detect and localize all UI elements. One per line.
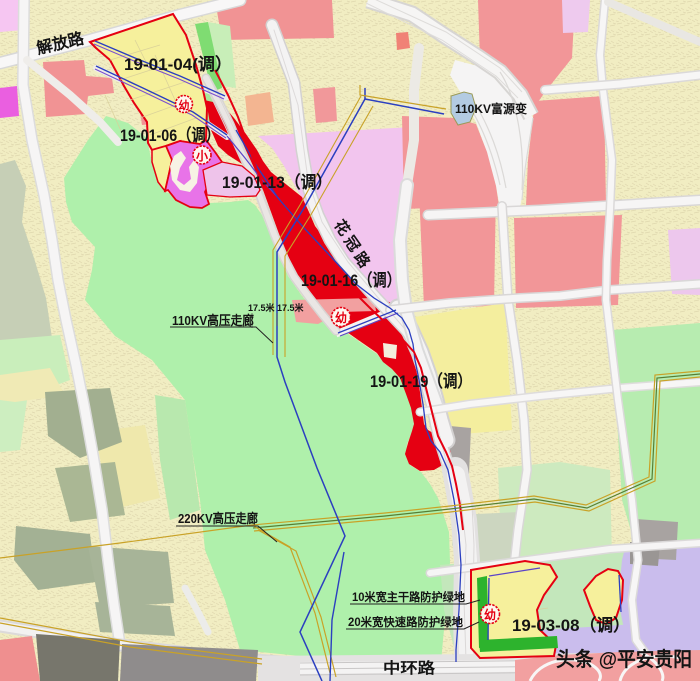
svg-text:110KV高压走廊: 110KV高压走廊: [172, 313, 254, 328]
svg-text:220KV高压走廊: 220KV高压走廊: [178, 511, 258, 526]
svg-text:小: 小: [196, 148, 208, 163]
svg-text:19-01-04(调）: 19-01-04(调）: [124, 54, 232, 74]
svg-text:中环路: 中环路: [383, 659, 436, 677]
svg-text:头条 @平安贵阳: 头条 @平安贵阳: [556, 647, 692, 671]
svg-text:19-03-08（调）: 19-03-08（调）: [512, 615, 630, 635]
svg-text:19-01-13（调）: 19-01-13（调）: [222, 172, 332, 192]
svg-text:110KV富源变: 110KV富源变: [455, 101, 527, 116]
svg-text:19-01-16（调）: 19-01-16（调）: [301, 270, 401, 290]
svg-text:19-01-19（调）: 19-01-19（调）: [370, 371, 472, 391]
svg-text:19-01-06（调）: 19-01-06（调）: [120, 125, 220, 145]
svg-text:10米宽主干路防护绿地: 10米宽主干路防护绿地: [352, 590, 465, 604]
svg-text:幼: 幼: [484, 607, 496, 622]
svg-text:17.5米 17.5米: 17.5米 17.5米: [248, 302, 305, 313]
svg-text:幼: 幼: [335, 310, 347, 325]
svg-text:幼: 幼: [179, 98, 190, 112]
svg-text:20米宽快速路防护绿地: 20米宽快速路防护绿地: [348, 615, 463, 629]
